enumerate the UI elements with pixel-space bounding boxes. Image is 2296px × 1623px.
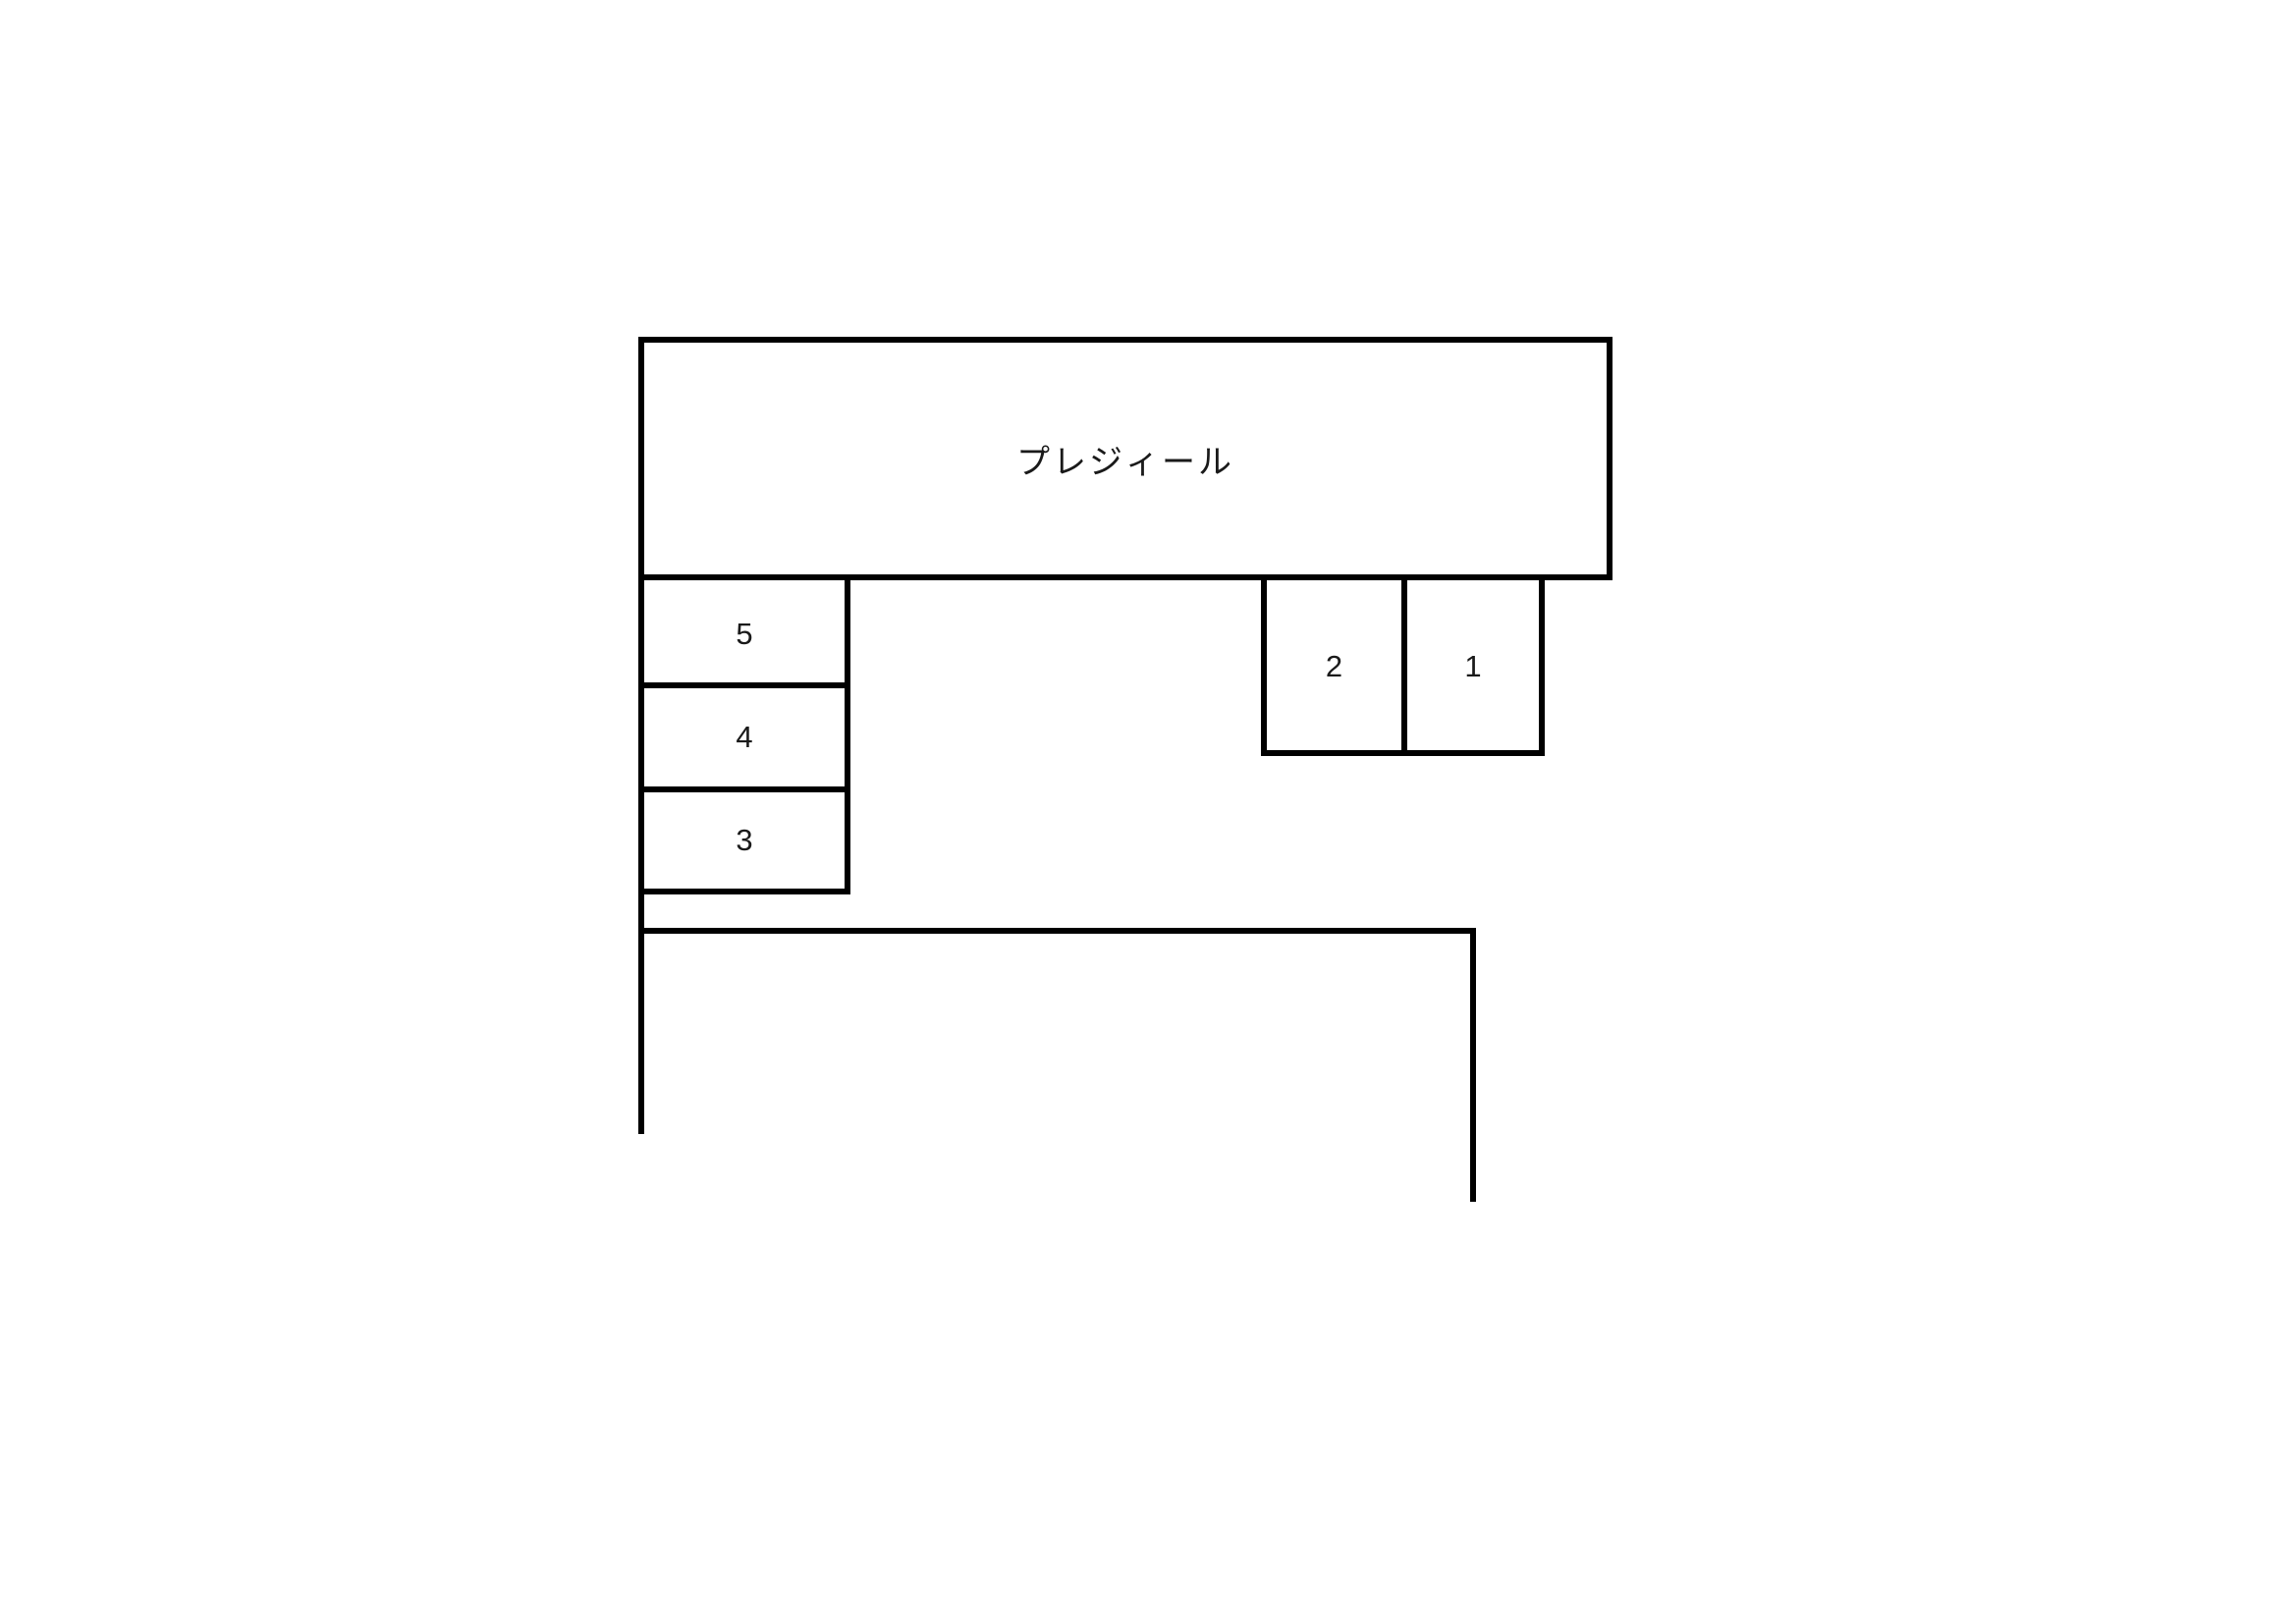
parking-layout-diagram: プレジィール 5 4 3 2 1 [0, 0, 2296, 1623]
parking-space-4-label: 4 [736, 720, 752, 755]
road-vertical-boundary-line [1470, 928, 1476, 1202]
building-outline: プレジィール [638, 337, 1613, 580]
parking-space-1: 1 [1407, 583, 1539, 750]
parking-space-3-label: 3 [736, 823, 752, 858]
building-label: プレジィール [1016, 435, 1234, 483]
parking-space-5-label: 5 [736, 617, 752, 652]
right-stalls-bottom-line [1261, 750, 1545, 756]
space1-right-edge-line [1539, 577, 1545, 756]
left-stalls-bottom-line [638, 889, 850, 894]
road-horizontal-boundary-line [638, 928, 1476, 934]
left-stalls-right-edge-line [845, 580, 850, 894]
parking-space-1-label: 1 [1464, 649, 1481, 684]
parking-space-2-label: 2 [1326, 649, 1342, 684]
parking-space-4: 4 [644, 688, 845, 786]
parking-space-3: 3 [644, 792, 845, 889]
parking-space-2: 2 [1267, 583, 1401, 750]
parking-space-5: 5 [644, 586, 845, 682]
